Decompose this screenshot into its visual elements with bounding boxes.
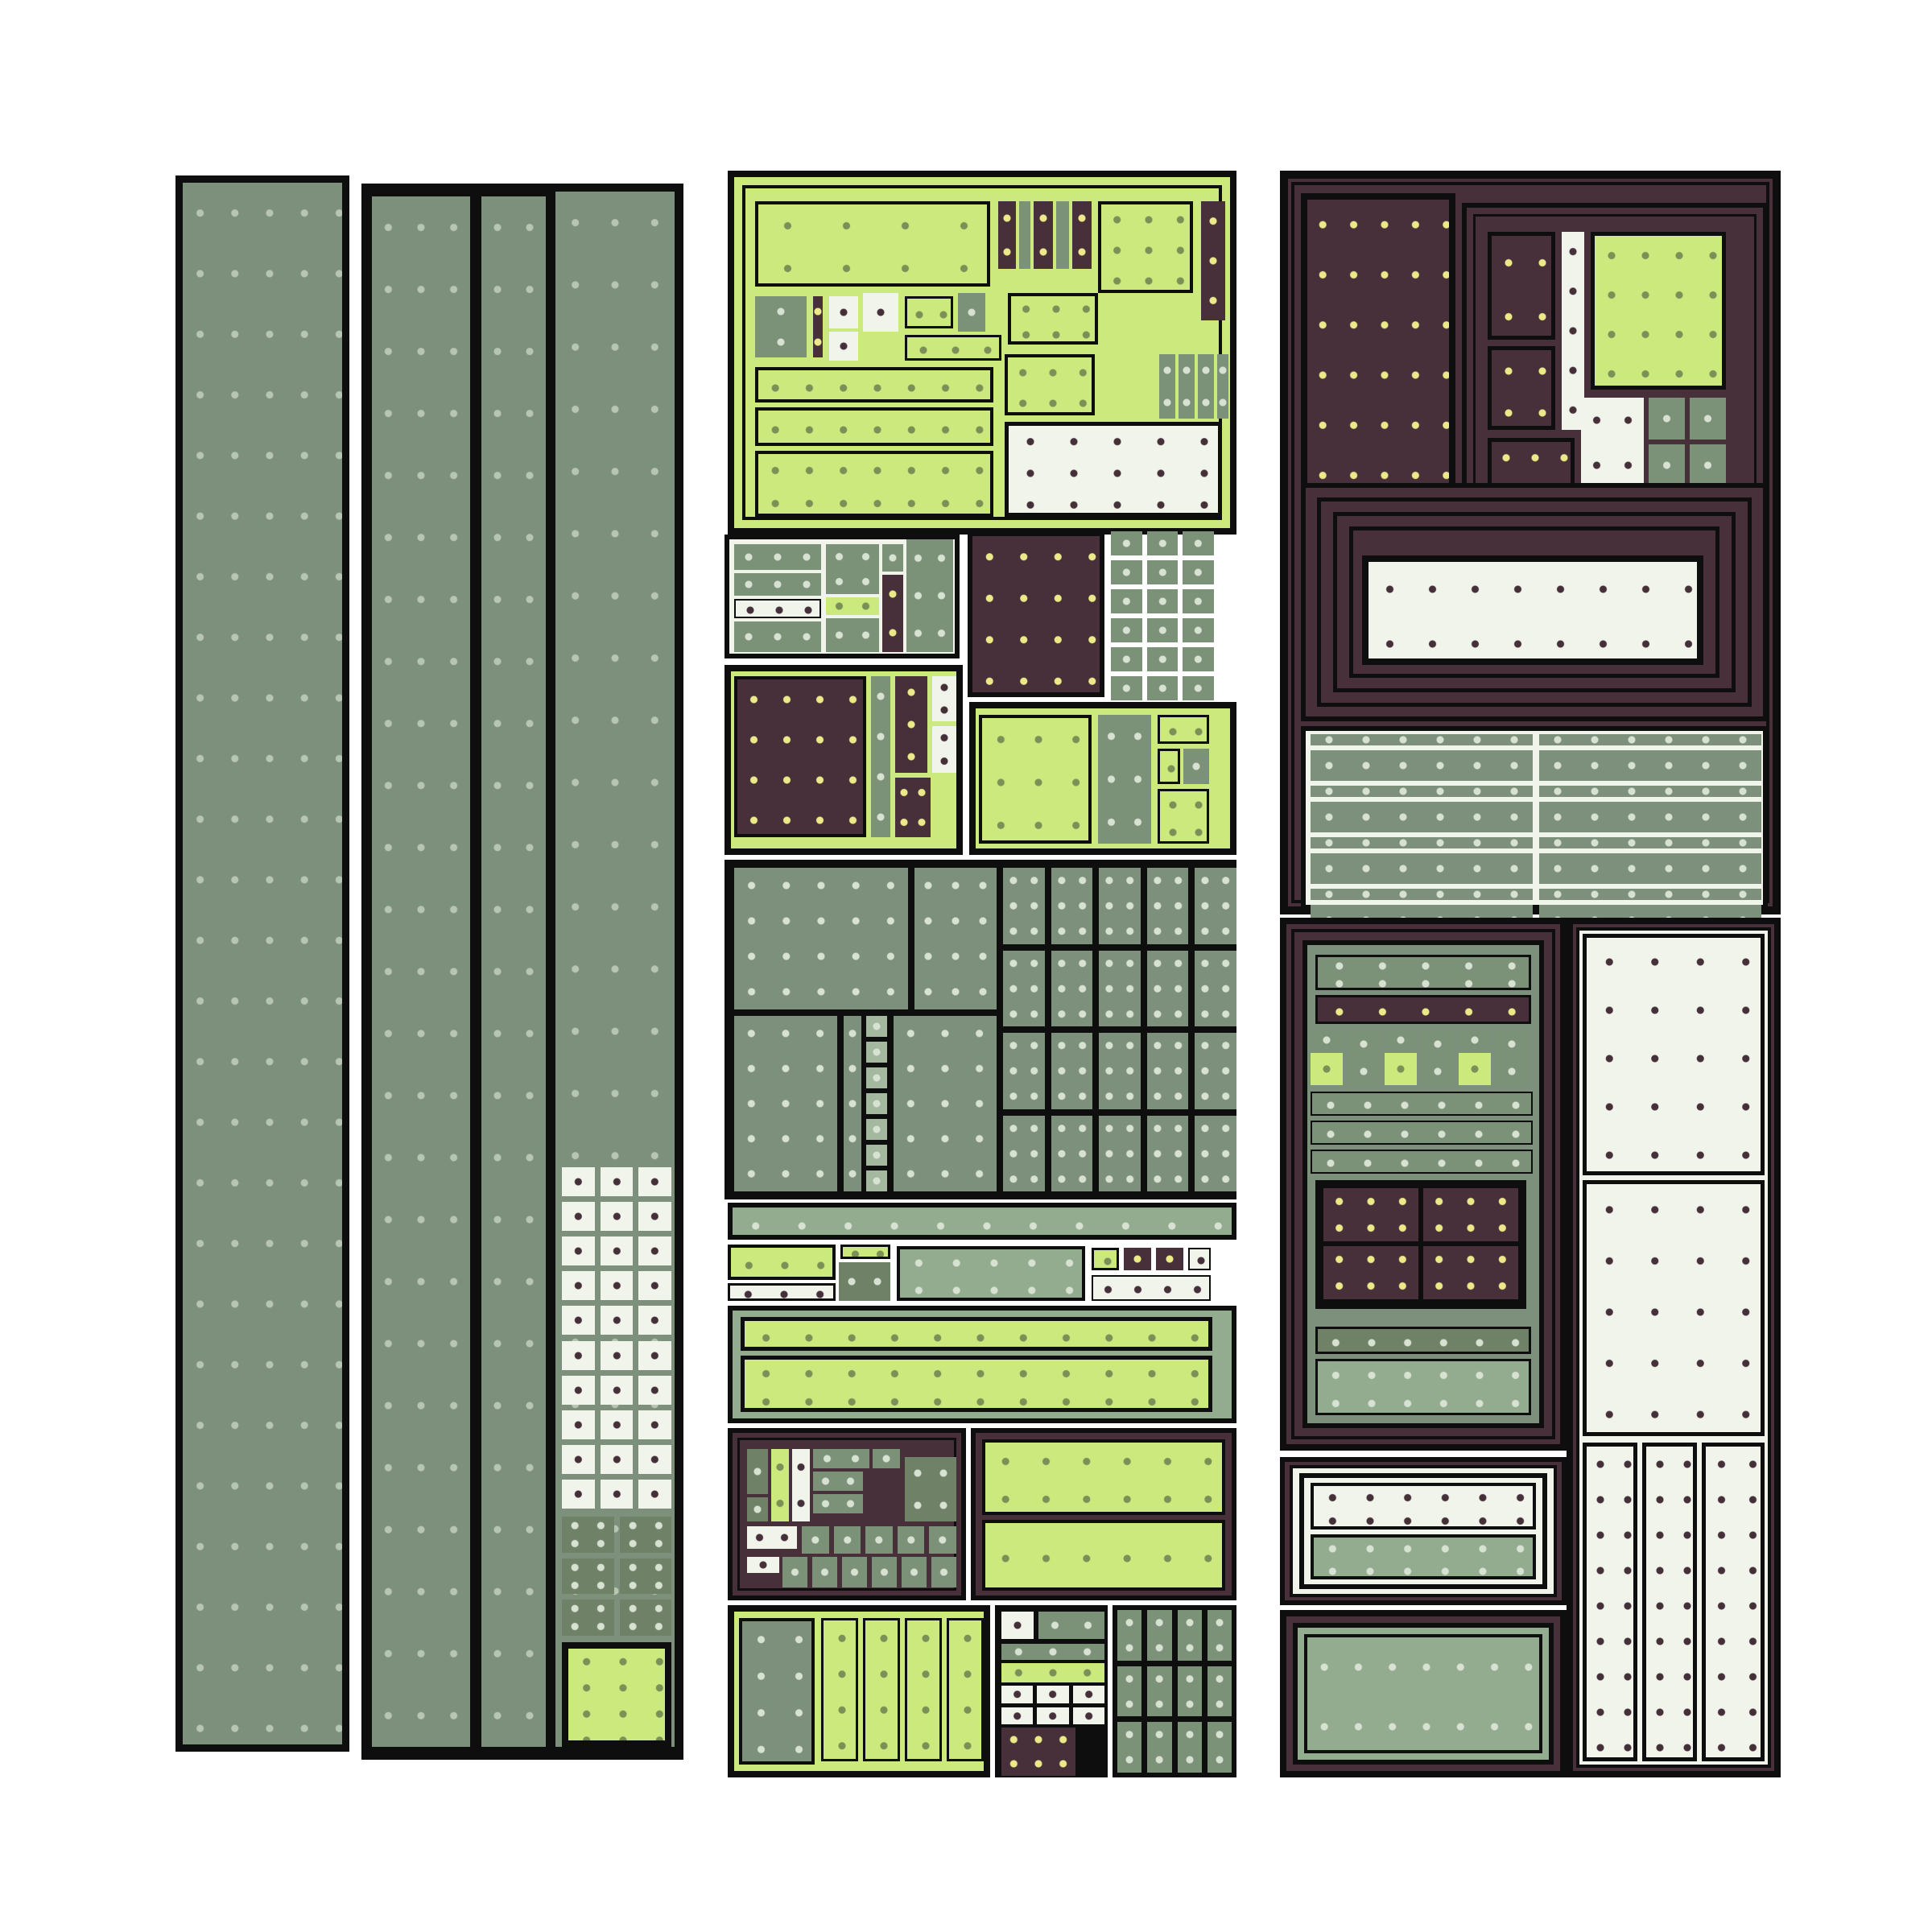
b3-sage-rect xyxy=(1098,715,1151,844)
b9-ow-grid-cell xyxy=(1037,1707,1068,1725)
left-sage-grid-cell xyxy=(620,1517,672,1553)
b8-cells-cell xyxy=(802,1526,829,1554)
c4-cell xyxy=(1422,1030,1454,1085)
b9-right-grid-cell xyxy=(1178,1610,1202,1661)
c3-stripes-cell xyxy=(1311,889,1533,900)
b4-right-grid-cell xyxy=(1051,1033,1093,1109)
left-white-grid-cell xyxy=(638,1202,671,1231)
left-white-grid-cell xyxy=(638,1306,671,1335)
b2-sage-bar xyxy=(734,544,821,570)
c1-sage-grid-cell xyxy=(1690,398,1726,440)
b2-sage-tall xyxy=(906,539,953,652)
b4-right-grid-cell xyxy=(1195,951,1236,1027)
b1-chart-bar xyxy=(905,335,1001,361)
c3-stripes-cell xyxy=(1311,837,1533,848)
c3-stripes-cell xyxy=(1311,786,1533,797)
b6-sage2-big xyxy=(897,1246,1085,1301)
mid-band5-bar xyxy=(728,1203,1236,1240)
b9-right-grid-cell xyxy=(1147,1666,1171,1717)
c4-brown-quad xyxy=(1423,1246,1518,1299)
b9-sage-bar xyxy=(1038,1612,1104,1639)
b3-chart-cell xyxy=(1158,715,1209,744)
b2-sage-grid-cell xyxy=(1111,647,1142,671)
b4-ladder-cell xyxy=(866,1016,887,1037)
b9-ow-grid-cell xyxy=(1001,1707,1033,1725)
c4-cell xyxy=(1348,1030,1380,1085)
b4-right-grid-cell xyxy=(1003,1116,1045,1192)
b6-sagedark-sq xyxy=(839,1262,890,1301)
b3-chart-cell xyxy=(1158,749,1180,784)
b1-wide-bar xyxy=(755,407,993,446)
b8-cells-cell xyxy=(898,1526,925,1554)
b2-sage-grid-cell xyxy=(1111,560,1142,584)
left-white-grid-cell xyxy=(638,1376,671,1405)
b1-brown-sliver xyxy=(813,296,823,357)
b4-right-grid-cell xyxy=(1003,1033,1045,1109)
b1-sage-bar xyxy=(1056,201,1069,269)
b1-brown-bar xyxy=(998,201,1016,269)
b2-sage-grid-cell xyxy=(1183,589,1214,613)
left-strip-2 xyxy=(481,196,546,1747)
left-white-grid-cell xyxy=(638,1271,671,1300)
b2-sage-sliver xyxy=(882,544,903,572)
b2-sage-grid-cell xyxy=(1183,647,1214,671)
b2-sage-grid-cell xyxy=(1183,531,1214,555)
b1-sage-cell xyxy=(958,293,985,332)
b8-sagedark-big xyxy=(905,1457,956,1521)
left-white-grid-cell xyxy=(638,1410,671,1439)
b9-chart-v xyxy=(947,1618,984,1761)
left-white-grid-cell xyxy=(601,1306,634,1335)
b2-sage-grid-cell xyxy=(1147,676,1179,700)
left-white-grid-cell xyxy=(562,1445,595,1474)
c4-bar xyxy=(1311,1092,1533,1116)
c4-cell-chart xyxy=(1385,1053,1417,1085)
left-white-grid-cell xyxy=(601,1480,634,1509)
b4-ladder-cell xyxy=(866,1067,887,1088)
b9-right-grid-cell xyxy=(1178,1666,1202,1717)
left-white-grid-cell xyxy=(562,1167,595,1196)
b4-right-grid-cell xyxy=(1003,951,1045,1027)
b1-bar-tl xyxy=(755,201,990,287)
b4-sage-tall-r xyxy=(894,1016,997,1191)
left-white-grid-cell xyxy=(601,1341,634,1370)
b4-right-grid-cell xyxy=(1147,1033,1189,1109)
b4-right-grid-cell xyxy=(1195,1033,1236,1109)
b6-chart-sm xyxy=(840,1245,890,1259)
b8-chart-v xyxy=(771,1449,789,1521)
b2-sage-sq xyxy=(826,618,879,652)
b6-ow-cell xyxy=(1188,1248,1211,1270)
b3-brown-big xyxy=(734,676,866,837)
b8-cells-cell xyxy=(929,1526,956,1554)
b9-sage-tall xyxy=(739,1618,815,1765)
b2-ow-bar xyxy=(734,599,821,618)
b1-wide-bar xyxy=(755,367,993,402)
b9-chart-bar xyxy=(1001,1663,1104,1682)
b4-ladder-cell xyxy=(866,1093,887,1114)
b2-sage-grid-cell xyxy=(1147,647,1179,671)
c3-stripes-cell xyxy=(1311,853,1533,884)
left-white-grid-cell xyxy=(562,1236,595,1265)
b9-brown-sq xyxy=(1001,1728,1075,1776)
b9-ow-grid-cell xyxy=(1073,1686,1104,1703)
b8-cells2-cell xyxy=(872,1557,897,1587)
c4-cell xyxy=(1496,1030,1528,1085)
b1-sage-vbar xyxy=(1179,354,1195,419)
b9-right-grid-cell xyxy=(1117,1722,1141,1773)
b1-chart-cell xyxy=(905,296,953,328)
b8-sage-cell xyxy=(813,1494,863,1513)
left-white-grid-cell xyxy=(638,1236,671,1265)
b9-right-grid-cell xyxy=(1178,1722,1202,1773)
b9-ow-grid-cell xyxy=(1073,1707,1104,1725)
c-white-strip xyxy=(1642,1443,1697,1761)
b4-right-grid-cell xyxy=(1003,868,1045,944)
b6-brown-cell xyxy=(1124,1248,1151,1270)
c4-cell xyxy=(1459,1030,1491,1050)
left-white-grid-cell xyxy=(638,1341,671,1370)
b8-ow-sm xyxy=(747,1557,779,1573)
b8-cells2-cell xyxy=(842,1557,867,1587)
c3-stripes-cell xyxy=(1539,734,1761,745)
c1-brown-sq xyxy=(1488,346,1555,430)
b6-ow-bar xyxy=(728,1283,836,1301)
b3-ow-vbar xyxy=(932,676,956,721)
b1-ow-cell xyxy=(829,296,858,328)
c4-cell xyxy=(1385,1030,1417,1050)
left-sage-grid-cell xyxy=(562,1517,614,1553)
b1-sage-sq xyxy=(755,296,807,357)
c3-stripes-cell xyxy=(1539,802,1761,832)
b7-chart-bar xyxy=(741,1317,1212,1351)
b4-right-grid-cell xyxy=(1099,868,1141,944)
b8-chart-rect xyxy=(982,1439,1225,1515)
left-sage-grid-cell xyxy=(620,1558,672,1595)
b1-sage-bar xyxy=(1019,201,1030,269)
b4-ladder-cell xyxy=(866,1042,887,1063)
left-strip-3 xyxy=(555,192,675,1747)
b4-right-grid-cell xyxy=(1147,1116,1189,1192)
b4-right-grid-cell xyxy=(1099,1033,1141,1109)
left-white-grid-cell xyxy=(562,1271,595,1300)
b8-sage-cell xyxy=(813,1472,863,1491)
b3-brown-vbar xyxy=(895,676,927,773)
b4-sage-tall-l xyxy=(734,1016,837,1191)
left-strip-1 xyxy=(372,196,470,1747)
left-white-grid-cell xyxy=(601,1445,634,1474)
b1-offwhite-square xyxy=(1005,422,1222,517)
b6-brown-cell xyxy=(1156,1248,1183,1270)
b2-sage-grid-cell xyxy=(1111,589,1142,613)
b2-sage-grid-cell xyxy=(1147,531,1179,555)
left-white-grid-cell xyxy=(601,1410,634,1439)
c4-brown-bar xyxy=(1315,995,1531,1024)
c1-sage-grid-cell xyxy=(1690,444,1726,486)
b9-right-grid-cell xyxy=(1207,1610,1232,1661)
b8-sagedark xyxy=(747,1449,768,1494)
c4-lightbar xyxy=(1315,1359,1531,1415)
b2-brown-bar xyxy=(882,575,903,652)
b4-right-grid-cell xyxy=(1099,951,1141,1027)
b7-chart-bar xyxy=(741,1356,1212,1412)
c4-brown-quad xyxy=(1423,1188,1518,1241)
left-big-panel xyxy=(175,175,349,1752)
left-white-grid-cell xyxy=(562,1306,595,1335)
b2-chart-bar xyxy=(826,597,879,615)
b6-chart-bar xyxy=(728,1245,836,1280)
b4-right-grid-cell xyxy=(1147,868,1189,944)
c3-stripes-cell xyxy=(1539,750,1761,781)
b2-sage-bar xyxy=(734,573,821,596)
c3-stripes-cell xyxy=(1311,734,1533,745)
b6-ow-bar xyxy=(1092,1275,1211,1301)
b9-right-grid-cell xyxy=(1117,1666,1141,1717)
c4-bar xyxy=(1311,1150,1533,1174)
b9-right-grid-cell xyxy=(1147,1722,1171,1773)
b8-sage-cell xyxy=(813,1449,869,1468)
b2-sage-grid-cell xyxy=(1147,618,1179,642)
c1-brown-sq xyxy=(1488,232,1555,340)
b2-sage-grid-cell xyxy=(1183,560,1214,584)
b9-right-grid-cell xyxy=(1207,1722,1232,1773)
b1-chart-square xyxy=(1098,201,1193,293)
b9-chart-v xyxy=(905,1618,942,1761)
c3-stripes-cell xyxy=(1539,853,1761,884)
c4-brown-quad xyxy=(1323,1188,1418,1241)
b1-ow-cell xyxy=(863,293,898,332)
left-white-grid-cell xyxy=(601,1202,634,1231)
b8-cells2-cell xyxy=(812,1557,837,1587)
b4-right-grid-cell xyxy=(1051,1116,1093,1192)
b1-ow-cell xyxy=(829,332,858,361)
b8-ow-v xyxy=(792,1449,810,1521)
c4-cell-chart xyxy=(1459,1053,1491,1085)
c6-bar xyxy=(1304,1634,1542,1753)
c3-stripes-cell xyxy=(1539,837,1761,848)
b4-right-grid-cell xyxy=(1099,1116,1141,1192)
b1-brown-tall xyxy=(1201,201,1225,320)
b8-cells2-cell xyxy=(931,1557,956,1587)
b8-cells-cell xyxy=(865,1526,893,1554)
b4-sage-tl xyxy=(734,868,908,1009)
b4-right-grid-cell xyxy=(1195,868,1236,944)
b9-ow-grid-cell xyxy=(1037,1686,1068,1703)
left-sage-grid-cell xyxy=(562,1600,614,1636)
b4-ladder-cell xyxy=(866,1170,887,1191)
c-white-strip xyxy=(1583,1443,1637,1761)
c2-center-white xyxy=(1362,555,1703,665)
b8-sagedark xyxy=(747,1497,768,1521)
b9-chart-v xyxy=(863,1618,900,1761)
b1-chart-rect xyxy=(1005,354,1095,415)
b2-sage-grid-cell xyxy=(1111,531,1142,555)
b9-chart-v xyxy=(821,1618,858,1761)
b1-brown-bar xyxy=(1034,201,1053,269)
c-white-strip xyxy=(1702,1443,1765,1761)
b3-ow-vbar xyxy=(932,726,956,773)
b4-ladder-cell xyxy=(866,1145,887,1166)
c4-darkbar xyxy=(1315,1327,1531,1354)
b9-right-grid-cell xyxy=(1207,1666,1232,1717)
c5-ow-bar xyxy=(1311,1483,1536,1529)
c4-sage-bar xyxy=(1315,955,1531,990)
c4-cell xyxy=(1311,1030,1343,1050)
b4-right-grid-cell xyxy=(1195,1116,1236,1192)
b4-strip xyxy=(844,1016,861,1191)
left-white-grid-cell xyxy=(562,1341,595,1370)
left-sage-grid-cell xyxy=(562,1558,614,1595)
b6-chart-cell xyxy=(1092,1248,1119,1270)
b3-brown-sq xyxy=(895,778,931,837)
c1-sage-grid-cell xyxy=(1649,444,1685,486)
b8-ow-bar xyxy=(747,1526,797,1549)
b9-ow-grid-cell xyxy=(1001,1686,1033,1703)
c3-stripes-cell xyxy=(1539,786,1761,797)
b3-chart-cell xyxy=(1158,789,1209,844)
b8-cells-cell xyxy=(834,1526,861,1554)
c1-sage-grid-cell xyxy=(1649,398,1685,440)
b2-sage-grid-cell xyxy=(1183,676,1214,700)
b9-right-grid-cell xyxy=(1117,1610,1141,1661)
b3-sage-sq xyxy=(1183,749,1209,784)
b8-sage-cell xyxy=(873,1449,900,1468)
b2-sage-grid-cell xyxy=(1147,560,1179,584)
b2-sage-sq xyxy=(826,544,879,594)
c1-chart-sq xyxy=(1591,232,1726,390)
c4-cell-chart xyxy=(1311,1053,1343,1085)
b2-brown-square xyxy=(968,531,1104,697)
b4-right-grid-cell xyxy=(1147,951,1189,1027)
left-sage-grid-cell xyxy=(620,1600,672,1636)
b2-sage-grid-cell xyxy=(1111,618,1142,642)
left-white-grid-cell xyxy=(562,1410,595,1439)
c4-brown-quad xyxy=(1323,1246,1418,1299)
c3-stripes-cell xyxy=(1539,889,1761,900)
b1-chart-rect xyxy=(1008,293,1098,345)
b8-cells2-cell xyxy=(902,1557,927,1587)
b9-ow-cell xyxy=(1001,1612,1034,1639)
c-white-cell xyxy=(1583,934,1765,1175)
left-white-grid-cell xyxy=(601,1271,634,1300)
b1-big-block xyxy=(755,451,993,517)
left-white-grid-cell xyxy=(638,1480,671,1509)
b2-sage-grid-cell xyxy=(1147,589,1179,613)
left-white-grid-cell xyxy=(638,1445,671,1474)
left-white-grid-cell xyxy=(562,1480,595,1509)
b2-sage-grid-cell xyxy=(1111,676,1142,700)
b9-right-grid-cell xyxy=(1147,1610,1171,1661)
left-white-grid-cell xyxy=(601,1376,634,1405)
b4-sage-top xyxy=(914,868,997,1009)
left-white-grid-cell xyxy=(562,1202,595,1231)
b2-sage-grid-cell xyxy=(1183,618,1214,642)
b1-sage-vbar xyxy=(1217,354,1228,419)
c3-stripes-cell xyxy=(1311,750,1533,781)
b8-cells2-cell xyxy=(782,1557,807,1587)
c-white-cell xyxy=(1583,1180,1765,1436)
c4-bar xyxy=(1311,1121,1533,1145)
b1-sage-vbar xyxy=(1159,354,1175,419)
b3-chart-big xyxy=(979,715,1092,844)
c5-sage-bar xyxy=(1311,1534,1536,1579)
left-white-grid-cell xyxy=(601,1167,634,1196)
b4-right-grid-cell xyxy=(1051,951,1093,1027)
b1-brown-bar xyxy=(1072,201,1092,269)
left-white-grid-cell xyxy=(638,1167,671,1196)
b2-sage-bar xyxy=(734,621,821,652)
c3-stripes-cell xyxy=(1311,802,1533,832)
b1-sage-vbar xyxy=(1198,354,1214,419)
left-chartreuse-cell xyxy=(562,1642,671,1747)
b9-sage-thin xyxy=(1001,1644,1104,1660)
b8-chart-rect xyxy=(982,1520,1225,1591)
left-white-grid-cell xyxy=(601,1236,634,1265)
b3-sage-vbar xyxy=(871,676,890,837)
b4-right-grid-cell xyxy=(1051,868,1093,944)
left-white-grid-cell xyxy=(562,1376,595,1405)
artwork-canvas xyxy=(0,0,1932,1932)
b4-ladder-cell xyxy=(866,1119,887,1140)
